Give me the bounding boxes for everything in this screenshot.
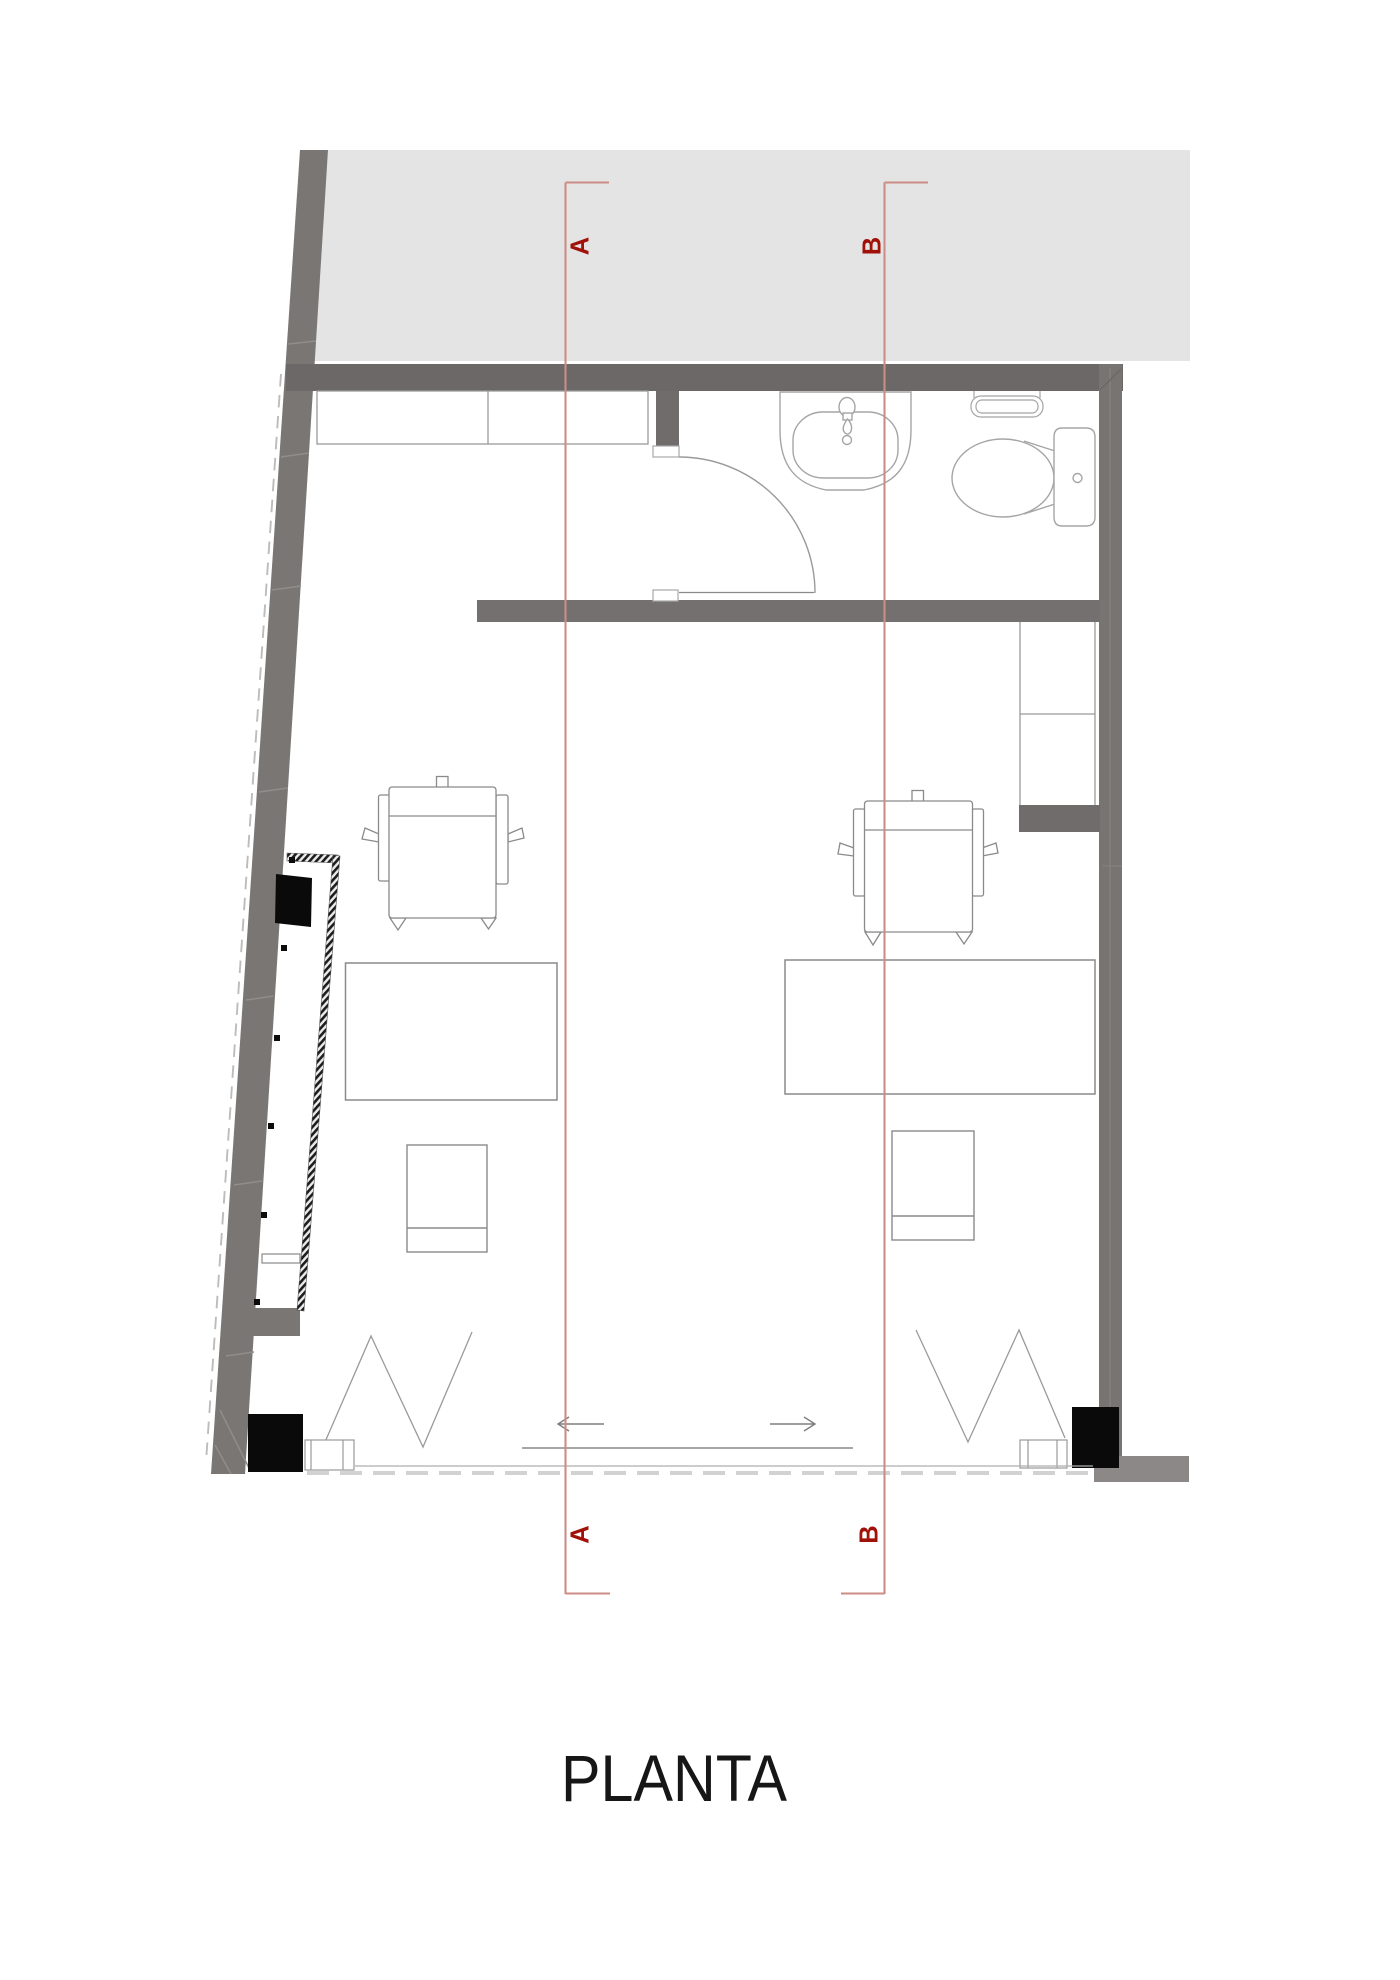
svg-text:B: B	[859, 237, 887, 255]
svg-text:B: B	[856, 1525, 884, 1543]
svg-text:A: A	[566, 1525, 594, 1543]
svg-text:A: A	[567, 237, 595, 255]
svg-text:PLANTA: PLANTA	[561, 1741, 787, 1815]
